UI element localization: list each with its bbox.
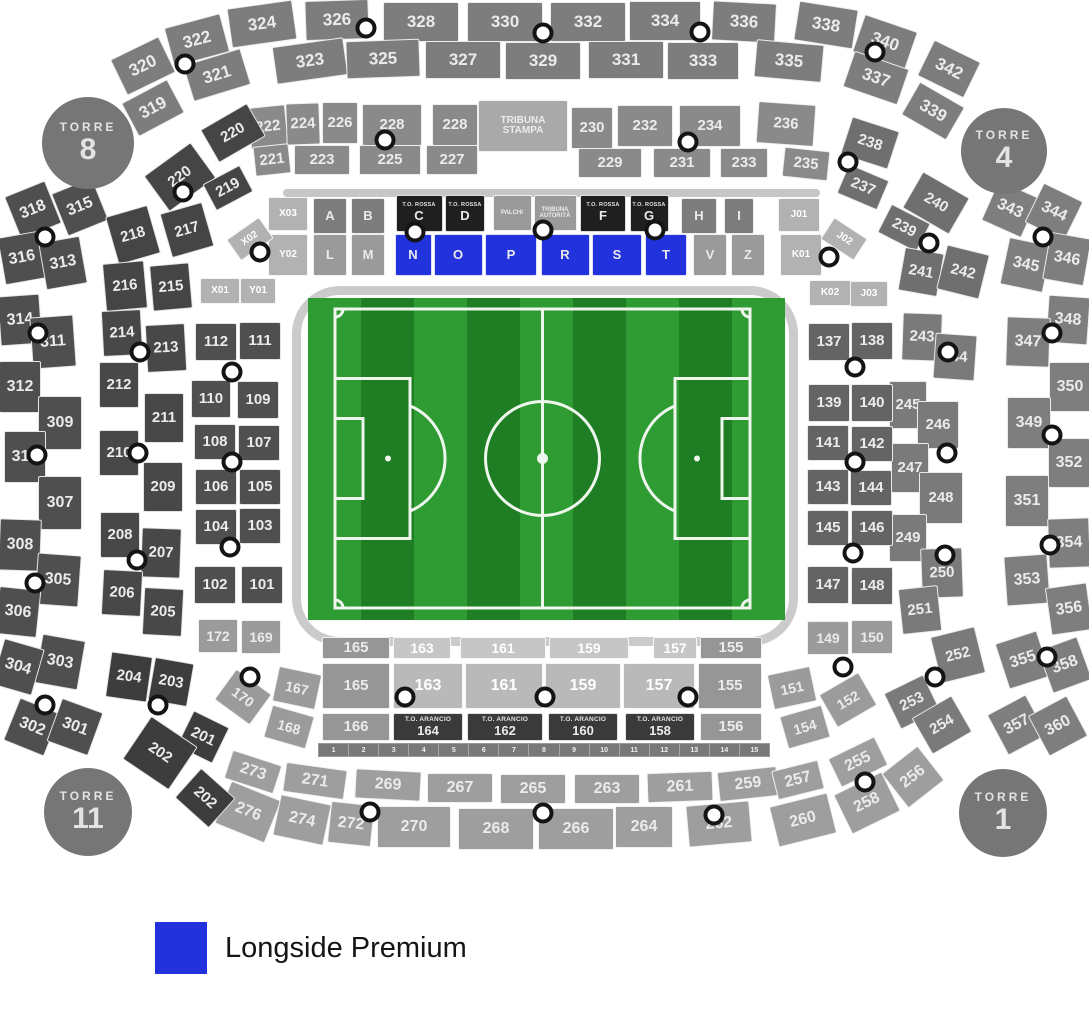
- section-212[interactable]: 212: [99, 362, 139, 408]
- entrance-marker: [533, 803, 554, 824]
- entrance-marker: [1042, 323, 1063, 344]
- section-360[interactable]: 360: [1028, 695, 1088, 756]
- section-353[interactable]: 353: [1003, 554, 1050, 607]
- entrance-marker: [690, 22, 711, 43]
- section-211[interactable]: 211: [144, 393, 184, 443]
- section-172[interactable]: 172: [198, 619, 238, 653]
- section-225[interactable]: 225: [359, 145, 421, 175]
- entrance-marker: [356, 18, 377, 39]
- section-209[interactable]: 209: [143, 462, 183, 512]
- section-221[interactable]: 221: [253, 143, 292, 177]
- section-161[interactable]: 161: [465, 663, 543, 709]
- section-236[interactable]: 236: [756, 101, 817, 147]
- gate-number: 15: [740, 744, 769, 756]
- section-323[interactable]: 323: [272, 37, 349, 85]
- gate-number: 3: [379, 744, 409, 756]
- section-102[interactable]: 102: [194, 566, 236, 604]
- section-k01[interactable]: K01: [780, 234, 822, 276]
- section-103[interactable]: 103: [239, 508, 281, 544]
- section-333[interactable]: 333: [667, 42, 739, 80]
- tower-11: TORRE11: [44, 768, 132, 856]
- entrance-marker: [173, 182, 194, 203]
- section-f[interactable]: T.O. ROSSAF: [580, 195, 626, 232]
- tower-1: TORRE1: [959, 769, 1047, 857]
- section-163[interactable]: 163: [393, 637, 451, 659]
- section-148[interactable]: 148: [851, 567, 893, 605]
- gate-number: 11: [620, 744, 650, 756]
- section-246[interactable]: 246: [917, 401, 959, 449]
- section-h[interactable]: H: [681, 198, 717, 234]
- section-146[interactable]: 146: [851, 510, 893, 546]
- section-231[interactable]: 231: [653, 148, 711, 178]
- section-j01[interactable]: J01: [778, 198, 820, 232]
- section-139[interactable]: 139: [808, 384, 850, 422]
- section-232[interactable]: 232: [617, 105, 673, 147]
- section-269[interactable]: 269: [354, 768, 421, 801]
- gate-number: 10: [590, 744, 620, 756]
- section-274[interactable]: 274: [272, 794, 332, 846]
- section-b[interactable]: B: [351, 198, 385, 234]
- section-329[interactable]: 329: [505, 42, 581, 80]
- section-356[interactable]: 356: [1045, 582, 1089, 635]
- legend: Longside Premium: [155, 922, 467, 974]
- entrance-marker: [395, 687, 416, 708]
- section-204[interactable]: 204: [105, 651, 153, 702]
- section-159[interactable]: 159: [549, 637, 629, 659]
- entrance-marker: [935, 545, 956, 566]
- entrance-marker: [1037, 647, 1058, 668]
- section-155[interactable]: 155: [698, 663, 762, 709]
- section-260[interactable]: 260: [769, 792, 837, 847]
- section-338[interactable]: 338: [793, 1, 859, 50]
- section-107[interactable]: 107: [238, 425, 280, 461]
- section-327[interactable]: 327: [425, 41, 501, 79]
- section-k02[interactable]: K02: [809, 280, 851, 306]
- section-330[interactable]: 330: [467, 2, 543, 42]
- section-218[interactable]: 218: [105, 205, 161, 265]
- section-263[interactable]: 263: [574, 774, 640, 804]
- section-230[interactable]: 230: [571, 107, 613, 149]
- entrance-marker: [27, 445, 48, 466]
- section-241[interactable]: 241: [897, 247, 944, 297]
- entrance-marker: [533, 23, 554, 44]
- gate-number: 13: [680, 744, 710, 756]
- section-168[interactable]: 168: [263, 705, 315, 750]
- entrance-marker: [855, 772, 876, 793]
- section-a[interactable]: A: [313, 198, 347, 234]
- section-141[interactable]: 141: [807, 425, 849, 461]
- section-151[interactable]: 151: [767, 666, 818, 710]
- section-s[interactable]: S: [592, 234, 642, 276]
- section-145[interactable]: 145: [807, 510, 849, 546]
- entrance-marker: [128, 443, 149, 464]
- section-x03[interactable]: X03: [268, 197, 308, 231]
- entrance-marker: [845, 452, 866, 473]
- section-213[interactable]: 213: [145, 323, 187, 373]
- section-271[interactable]: 271: [282, 762, 348, 800]
- section-t[interactable]: T: [645, 234, 687, 276]
- section-223[interactable]: 223: [294, 145, 350, 175]
- section-206[interactable]: 206: [101, 569, 143, 617]
- section-351[interactable]: 351: [1005, 475, 1049, 527]
- entrance-marker: [1040, 535, 1061, 556]
- entrance-marker: [919, 233, 940, 254]
- section-150[interactable]: 150: [851, 620, 893, 654]
- entrance-marker: [535, 687, 556, 708]
- section-143[interactable]: 143: [807, 469, 849, 505]
- section-165[interactable]: 165: [322, 637, 390, 659]
- section-144[interactable]: 144: [850, 470, 892, 506]
- section-267[interactable]: 267: [427, 773, 493, 803]
- section-265[interactable]: 265: [500, 774, 566, 804]
- section-312[interactable]: 312: [0, 361, 41, 413]
- entrance-marker: [678, 687, 699, 708]
- section-261[interactable]: 261: [646, 771, 713, 803]
- section-156[interactable]: 156: [700, 713, 762, 741]
- section-335[interactable]: 335: [753, 39, 824, 83]
- section-205[interactable]: 205: [142, 587, 184, 637]
- stadium-map: 123456789101112131415 Longside Premium 3…: [0, 0, 1089, 1032]
- gate-number: 9: [560, 744, 590, 756]
- section-110[interactable]: 110: [191, 380, 231, 418]
- section-p[interactable]: P: [485, 234, 537, 276]
- section-226[interactable]: 226: [322, 102, 358, 144]
- entrance-marker: [865, 42, 886, 63]
- entrance-marker: [704, 805, 725, 826]
- entrance-marker: [1042, 425, 1063, 446]
- section-264[interactable]: 264: [615, 806, 673, 848]
- section-154[interactable]: 154: [779, 705, 831, 750]
- section-215[interactable]: 215: [149, 262, 193, 311]
- section-325[interactable]: 325: [345, 39, 420, 80]
- section-336[interactable]: 336: [711, 0, 777, 43]
- entrance-marker: [819, 247, 840, 268]
- entrance-marker: [1033, 227, 1054, 248]
- section-y02[interactable]: Y02: [268, 234, 308, 276]
- section-112[interactable]: 112: [195, 323, 237, 361]
- tower-4: TORRE4: [961, 108, 1047, 194]
- section-308[interactable]: 308: [0, 518, 42, 571]
- section-z[interactable]: Z: [731, 234, 765, 276]
- section-166[interactable]: 166: [322, 713, 390, 741]
- entrance-marker: [240, 667, 261, 688]
- section-tribuna-stampa: TRIBUNA STAMPA: [478, 100, 568, 152]
- section-140[interactable]: 140: [851, 384, 893, 422]
- entrance-marker: [938, 342, 959, 363]
- section-165[interactable]: 165: [322, 663, 390, 709]
- entrance-marker: [533, 220, 554, 241]
- section-109[interactable]: 109: [237, 381, 279, 419]
- entrance-marker: [838, 152, 859, 173]
- entrance-marker: [222, 452, 243, 473]
- section-229[interactable]: 229: [578, 148, 642, 178]
- section-167[interactable]: 167: [272, 666, 323, 710]
- entrance-marker: [843, 543, 864, 564]
- section-155[interactable]: 155: [700, 637, 762, 659]
- section-147[interactable]: 147: [807, 566, 849, 604]
- section-227[interactable]: 227: [426, 145, 478, 175]
- section-y01[interactable]: Y01: [240, 278, 276, 304]
- entrance-marker: [645, 220, 666, 241]
- section-251[interactable]: 251: [898, 585, 943, 635]
- section-161[interactable]: 161: [460, 637, 546, 659]
- football-pitch: [308, 298, 785, 620]
- entrance-marker: [937, 443, 958, 464]
- section-306[interactable]: 306: [0, 586, 41, 638]
- entrance-marker: [925, 667, 946, 688]
- section-162[interactable]: T.O. ARANCIO162: [467, 713, 543, 741]
- section-328[interactable]: 328: [383, 2, 459, 42]
- section-307[interactable]: 307: [38, 476, 82, 530]
- section-268[interactable]: 268: [458, 808, 534, 850]
- section-324[interactable]: 324: [227, 0, 298, 48]
- gate-number: 14: [710, 744, 740, 756]
- section-159[interactable]: 159: [545, 663, 621, 709]
- gate-number: 8: [529, 744, 559, 756]
- section-137[interactable]: 137: [808, 323, 850, 361]
- section-106[interactable]: 106: [195, 469, 237, 505]
- section-l[interactable]: L: [313, 234, 347, 276]
- section-160[interactable]: T.O. ARANCIO160: [548, 713, 618, 741]
- section-224[interactable]: 224: [285, 102, 320, 145]
- entrance-marker: [250, 242, 271, 263]
- entrance-marker: [175, 54, 196, 75]
- section-149[interactable]: 149: [807, 621, 849, 655]
- section-303[interactable]: 303: [34, 634, 86, 691]
- section-105[interactable]: 105: [239, 469, 281, 505]
- tower-8: TORRE8: [42, 97, 134, 189]
- section-207[interactable]: 207: [140, 527, 182, 578]
- legend-swatch: [155, 922, 207, 974]
- section-235[interactable]: 235: [782, 147, 831, 182]
- section-270[interactable]: 270: [377, 806, 451, 848]
- gate-number-strip: 123456789101112131415: [318, 743, 770, 757]
- section-m[interactable]: M: [351, 234, 385, 276]
- entrance-marker: [375, 130, 396, 151]
- gate-number: 5: [439, 744, 469, 756]
- section-158[interactable]: T.O. ARANCIO158: [625, 713, 695, 741]
- entrance-marker: [222, 362, 243, 383]
- gate-number: 6: [469, 744, 499, 756]
- section-palchi: PALCHI: [493, 195, 532, 231]
- section-332[interactable]: 332: [550, 2, 626, 42]
- section-i[interactable]: I: [724, 198, 754, 234]
- section-347[interactable]: 347: [1005, 316, 1051, 368]
- gate-number: 1: [319, 744, 349, 756]
- gate-number: 4: [409, 744, 439, 756]
- entrance-marker: [35, 695, 56, 716]
- section-228[interactable]: 228: [432, 104, 478, 146]
- section-242[interactable]: 242: [936, 244, 990, 299]
- section-164[interactable]: T.O. ARANCIO164: [393, 713, 463, 741]
- entrance-marker: [360, 802, 381, 823]
- section-j03[interactable]: J03: [850, 281, 888, 307]
- section-o[interactable]: O: [434, 234, 483, 276]
- section-152[interactable]: 152: [819, 672, 878, 728]
- entrance-marker: [148, 695, 169, 716]
- section-138[interactable]: 138: [851, 322, 893, 360]
- entrance-marker: [845, 357, 866, 378]
- gate-number: 12: [650, 744, 680, 756]
- entrance-marker: [130, 342, 151, 363]
- section-101[interactable]: 101: [241, 566, 283, 604]
- legend-label: Longside Premium: [225, 932, 467, 965]
- section-157[interactable]: 157: [653, 637, 697, 659]
- gate-number: 7: [499, 744, 529, 756]
- section-350[interactable]: 350: [1049, 362, 1089, 412]
- entrance-marker: [678, 132, 699, 153]
- entrance-marker: [833, 657, 854, 678]
- section-x01[interactable]: X01: [200, 278, 240, 304]
- section-259[interactable]: 259: [717, 766, 780, 802]
- section-331[interactable]: 331: [588, 41, 664, 79]
- section-216[interactable]: 216: [102, 260, 148, 311]
- entrance-marker: [220, 537, 241, 558]
- entrance-marker: [25, 573, 46, 594]
- entrance-marker: [28, 323, 49, 344]
- entrance-marker: [127, 550, 148, 571]
- section-d[interactable]: T.O. ROSSAD: [445, 195, 485, 232]
- section-169[interactable]: 169: [241, 620, 281, 654]
- section-352[interactable]: 352: [1048, 438, 1089, 488]
- section-111[interactable]: 111: [239, 322, 281, 360]
- gate-number: 2: [349, 744, 379, 756]
- section-v[interactable]: V: [693, 234, 727, 276]
- section-304[interactable]: 304: [0, 638, 45, 696]
- section-r[interactable]: R: [541, 234, 590, 276]
- section-233[interactable]: 233: [720, 148, 768, 178]
- entrance-marker: [35, 227, 56, 248]
- entrance-marker: [405, 222, 426, 243]
